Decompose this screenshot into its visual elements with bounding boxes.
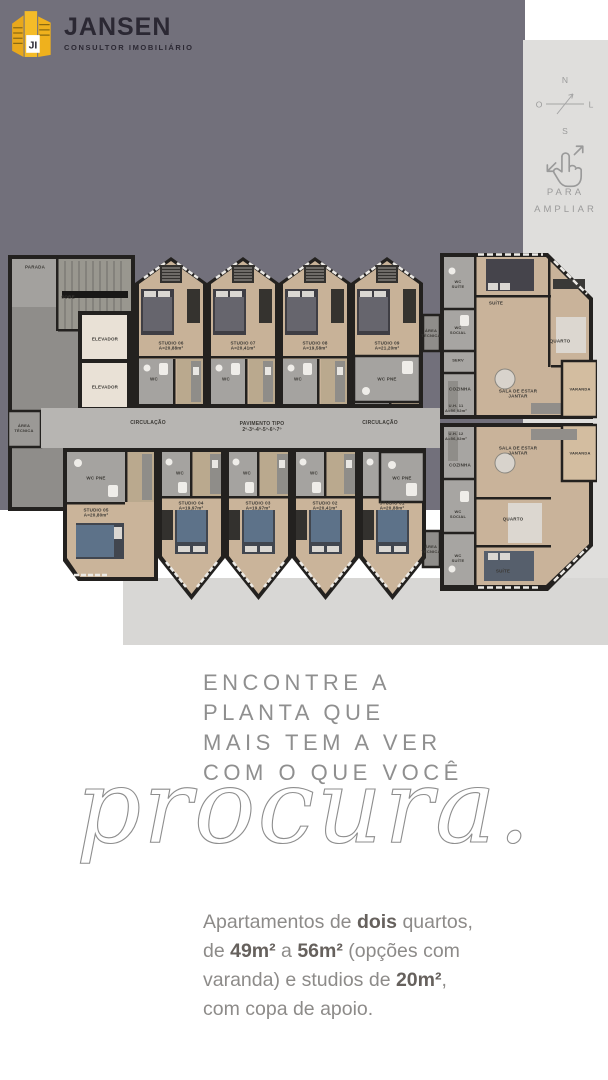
brand-logo: JI JANSEN CONSULTOR IMOBILIÁRIO — [10, 8, 194, 58]
studio-row-top — [135, 257, 423, 408]
studio-unit — [158, 448, 225, 600]
zoom-hint-line2: AMPLIAR — [523, 201, 608, 218]
wc-pne-room — [380, 452, 424, 502]
flyer-page: { "logo": { "brand": "JANSEN", "tagline"… — [0, 0, 608, 1080]
studio-unit — [292, 448, 359, 600]
studio-unit — [279, 257, 351, 408]
brand-name: JANSEN — [64, 15, 194, 40]
building-logo-icon: JI — [10, 8, 58, 58]
brand-text-block: JANSEN CONSULTOR IMOBILIÁRIO — [64, 15, 194, 52]
studio-row-bottom — [63, 448, 426, 600]
area-tecnica-room — [423, 315, 440, 351]
headline-line-2: PLANTA QUE — [203, 698, 463, 728]
copy-text: , — [441, 969, 446, 991]
studio-05 — [63, 448, 158, 581]
copy-text: (opções com — [343, 940, 460, 962]
svg-text:N: N — [562, 75, 568, 85]
studio-unit — [207, 257, 279, 408]
apartment-uh12 — [440, 423, 597, 591]
copy-bold: dois — [357, 911, 397, 933]
zoom-hint: PARA AMPLIAR — [523, 184, 608, 218]
copy-text: de — [203, 940, 230, 962]
headline-line-1: ENCONTRE A — [203, 668, 463, 698]
zoom-hint-line1: PARA — [523, 184, 608, 201]
copy-text: Apartamentos de — [203, 911, 357, 933]
headline-script-word: procura. — [76, 752, 576, 864]
compass-icon: N O L S — [532, 70, 598, 142]
body-copy: Apartamentos de dois quartos, de 49m² a … — [203, 908, 483, 1024]
copy-text: a — [276, 940, 298, 962]
floor-plan[interactable] — [8, 251, 597, 613]
copy-bold: 49m² — [230, 940, 276, 962]
copy-bold: 20m² — [396, 969, 442, 991]
copy-bold: 56m² — [297, 940, 343, 962]
svg-text:L: L — [589, 100, 594, 110]
corridor — [41, 408, 440, 448]
copy-text: com copa de apoio. — [203, 998, 373, 1020]
studio-unit — [225, 448, 292, 600]
svg-text:S: S — [562, 126, 568, 136]
apartment-uh11 — [440, 253, 597, 419]
copy-text: quartos, — [397, 911, 473, 933]
svg-text:JI: JI — [29, 41, 38, 52]
brand-tagline: CONSULTOR IMOBILIÁRIO — [64, 43, 194, 52]
studio-unit — [135, 257, 207, 408]
copy-text: varanda) e studios de — [203, 969, 396, 991]
svg-text:O: O — [536, 100, 543, 110]
zoom-gesture-icon — [538, 140, 590, 190]
